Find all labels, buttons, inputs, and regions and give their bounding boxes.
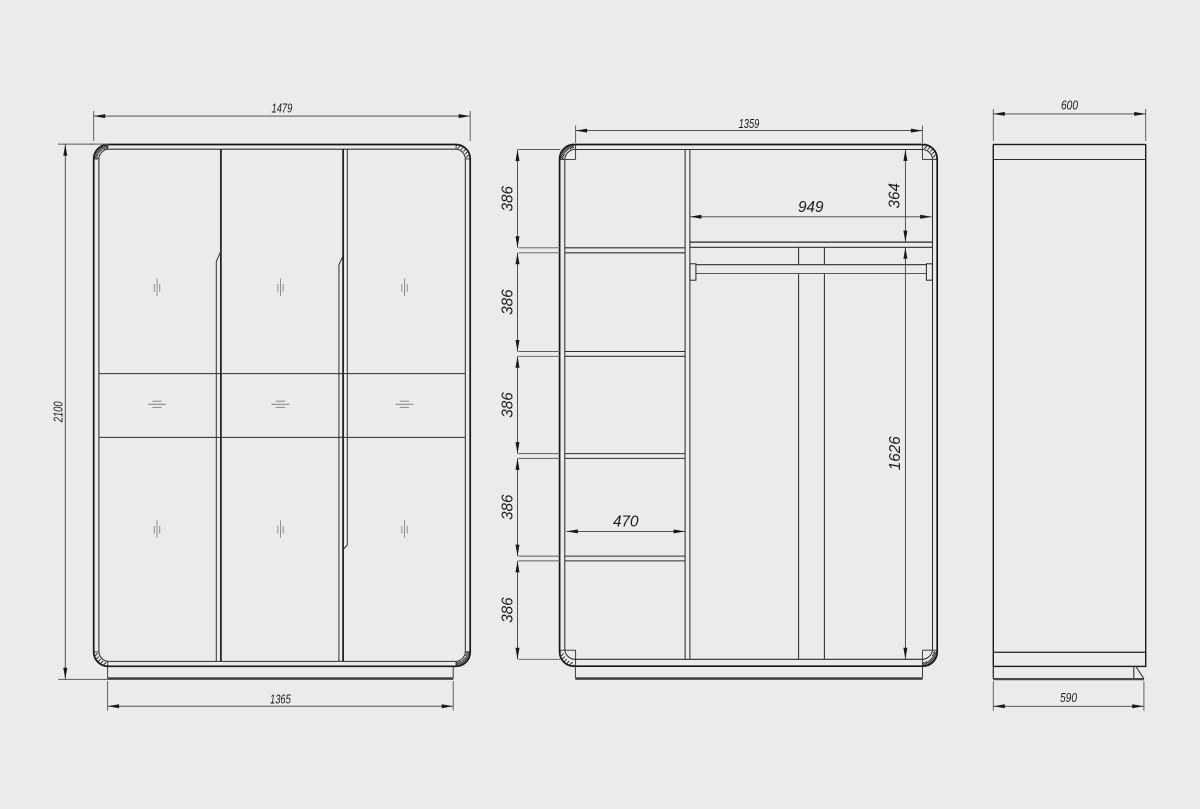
svg-text:364: 364 — [887, 183, 904, 209]
svg-text:1365: 1365 — [270, 692, 292, 706]
svg-text:590: 590 — [1060, 691, 1077, 705]
svg-text:600: 600 — [1061, 99, 1078, 113]
svg-text:386: 386 — [499, 289, 516, 315]
svg-text:386: 386 — [499, 392, 516, 418]
svg-text:1479: 1479 — [272, 102, 293, 116]
svg-text:386: 386 — [499, 186, 516, 212]
svg-text:1359: 1359 — [739, 117, 760, 131]
svg-text:386: 386 — [499, 494, 516, 520]
svg-text:949: 949 — [798, 199, 824, 216]
svg-text:470: 470 — [613, 514, 639, 531]
svg-text:386: 386 — [499, 597, 516, 623]
svg-text:2100: 2100 — [52, 401, 66, 423]
svg-text:1626: 1626 — [887, 436, 904, 470]
